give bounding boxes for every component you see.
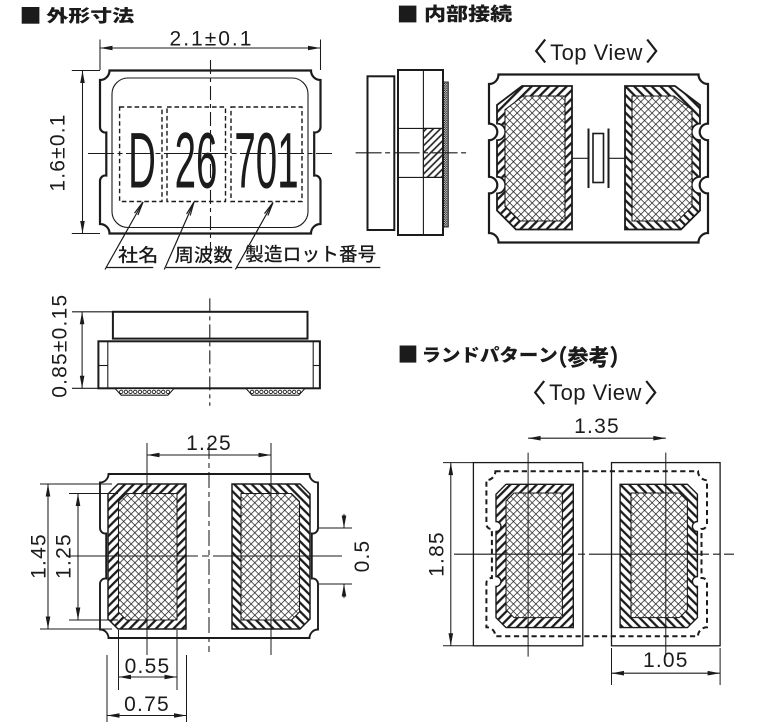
- svg-text:Top View: Top View: [550, 40, 643, 65]
- svg-text:1.85: 1.85: [426, 531, 449, 577]
- svg-text:D: D: [128, 118, 156, 206]
- svg-text:2.1±0.1: 2.1±0.1: [170, 28, 254, 51]
- svg-text:1.05: 1.05: [643, 649, 689, 672]
- svg-text:0.75: 0.75: [124, 693, 170, 716]
- svg-text:1.35: 1.35: [574, 415, 620, 438]
- svg-text:701: 701: [234, 118, 298, 206]
- svg-text:0.85±0.15: 0.85±0.15: [49, 294, 72, 398]
- svg-text:1.45: 1.45: [28, 533, 51, 579]
- svg-text:Top View: Top View: [549, 380, 642, 405]
- svg-text:0.5: 0.5: [351, 540, 374, 573]
- svg-text:1.25: 1.25: [53, 533, 76, 579]
- svg-text:0.55: 0.55: [125, 655, 171, 678]
- svg-text:1.6±0.1: 1.6±0.1: [47, 113, 70, 191]
- svg-text:1.25: 1.25: [186, 432, 232, 455]
